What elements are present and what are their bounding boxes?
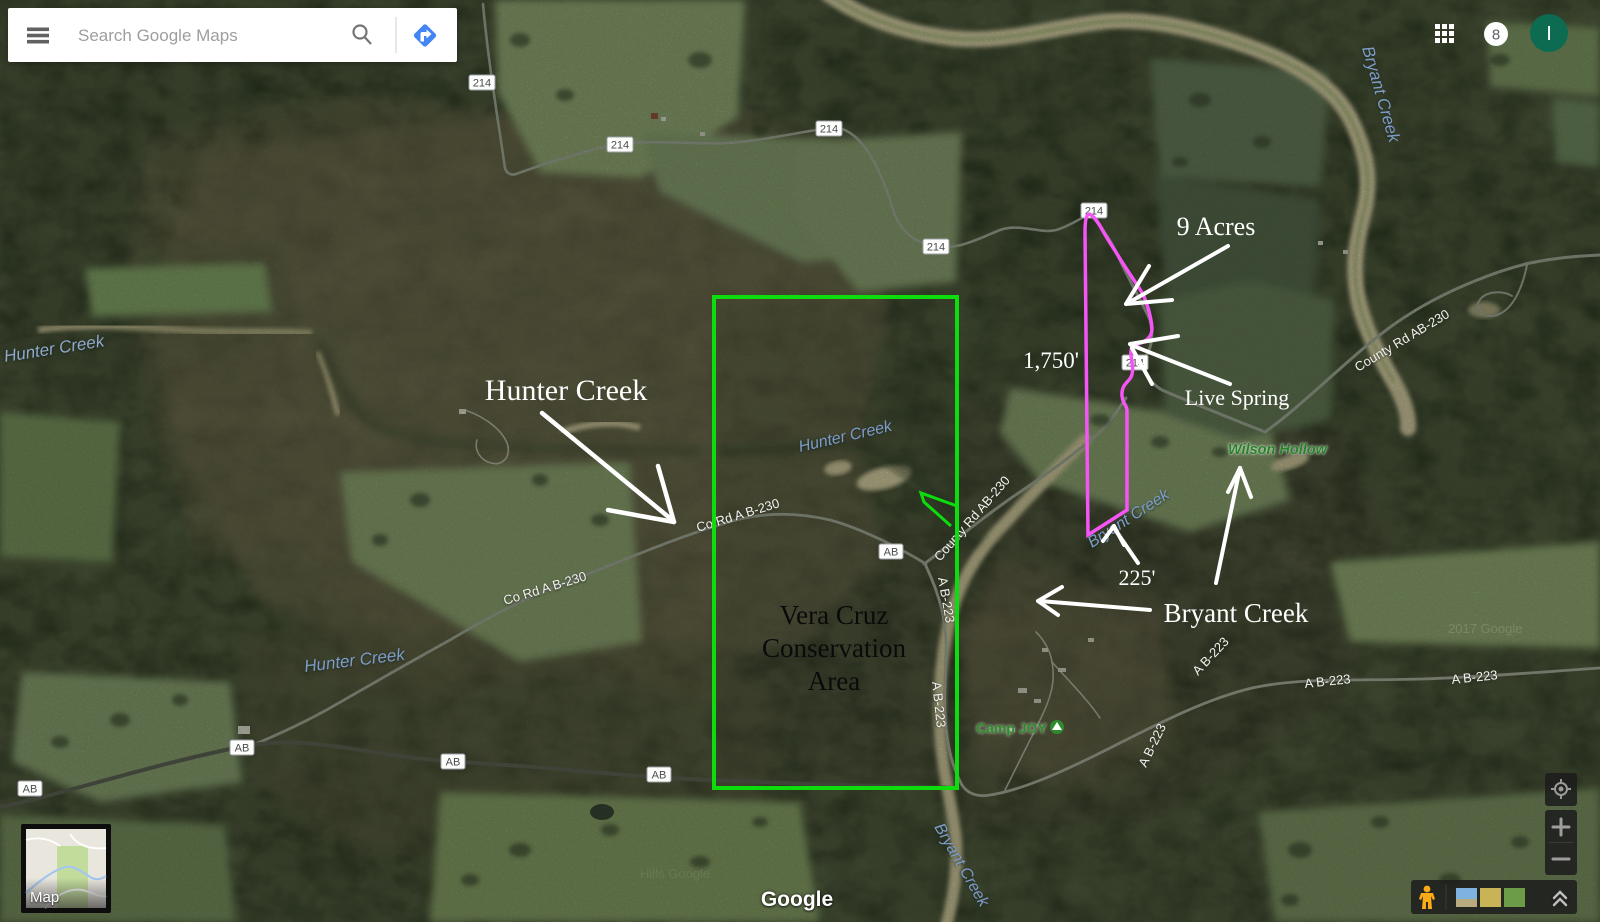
svg-text:AB: AB xyxy=(446,757,461,769)
svg-text:214: 214 xyxy=(611,140,629,152)
svg-text:Google: Google xyxy=(761,888,833,911)
svg-text:9 Acres: 9 Acres xyxy=(1177,212,1256,241)
svg-text:Live Spring: Live Spring xyxy=(1185,385,1290,410)
svg-text:1,750': 1,750' xyxy=(1023,348,1079,373)
svg-text:8: 8 xyxy=(1492,27,1500,44)
svg-text:214: 214 xyxy=(820,124,838,136)
svg-text:AB: AB xyxy=(235,743,250,755)
svg-text:Conservation: Conservation xyxy=(762,633,906,663)
svg-text:225': 225' xyxy=(1119,565,1156,590)
svg-text:AB: AB xyxy=(652,770,667,782)
svg-text:214: 214 xyxy=(473,78,491,90)
svg-text:Wilson Hollow: Wilson Hollow xyxy=(1228,442,1329,458)
svg-text:Vera Cruz: Vera Cruz xyxy=(780,600,889,630)
svg-text:AB: AB xyxy=(884,547,899,559)
svg-text:Camp JOY: Camp JOY xyxy=(976,720,1047,736)
svg-text:I: I xyxy=(1546,23,1552,45)
svg-text:2017 Google: 2017 Google xyxy=(1448,621,1522,636)
svg-text:Area: Area xyxy=(808,666,860,696)
svg-text:Search Google Maps: Search Google Maps xyxy=(78,26,238,45)
svg-text:Hills Google: Hills Google xyxy=(640,866,710,881)
svg-text:Bryant Creek: Bryant Creek xyxy=(1164,598,1309,628)
svg-text:214: 214 xyxy=(927,242,945,254)
svg-text:Hunter Creek: Hunter Creek xyxy=(485,374,647,407)
svg-text:AB: AB xyxy=(23,784,38,796)
svg-text:Map: Map xyxy=(30,889,59,906)
